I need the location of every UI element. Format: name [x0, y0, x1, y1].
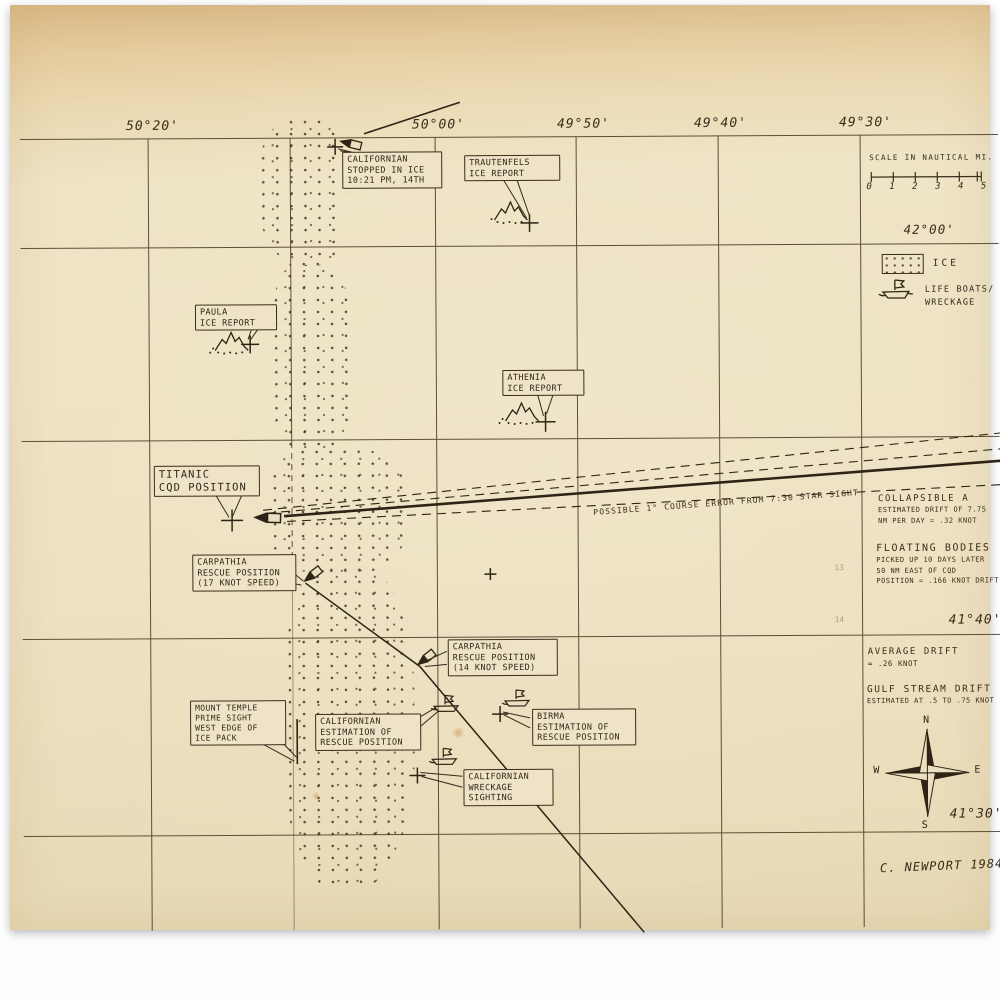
callout-californian-estimation: CALIFORNIAN ESTIMATION OF RESCUE POSITIO…	[315, 713, 421, 750]
lifeboat-icon	[502, 690, 529, 706]
note-body: ESTIMATED DRIFT OF 7.75 NM PER DAY = .32…	[878, 505, 987, 527]
scale-tick: 2	[912, 182, 917, 192]
carpathia-17-ship-arrow	[301, 565, 323, 585]
callout-carpathia-rescue-14: CARPATHIA RESCUE POSITION (14 KNOT SPEED…	[448, 639, 558, 676]
note-title: GULF STREAM DRIFT	[867, 683, 994, 695]
note-body: = .26 KNOT	[868, 658, 959, 670]
leader-lines	[214, 148, 555, 789]
scale-tick: 5	[981, 182, 986, 192]
callout-carpathia-rescue-17: CARPATHIA RESCUE POSITION (17 KNOT SPEED…	[192, 554, 296, 591]
iceberg-icon-paula	[209, 332, 248, 354]
pencil-mark: 13	[834, 563, 844, 572]
callout-paula-ice-report: PAULA ICE REPORT	[195, 304, 277, 331]
compass-west-label: W	[873, 765, 879, 776]
ice-swatch-icon	[882, 254, 924, 274]
callout-californian-stopped: CALIFORNIAN STOPPED IN ICE 10:21 PM, 14T…	[342, 151, 442, 188]
lifeboat-icon	[429, 748, 456, 764]
scale-tick-numbers: 0 1 2 3 4 5	[866, 182, 986, 193]
scale-tick: 4	[958, 182, 963, 192]
note-title: AVERAGE DRIFT	[868, 647, 959, 657]
note-title: COLLAPSIBLE A	[878, 494, 986, 505]
note-title: FLOATING BODIES	[876, 542, 999, 554]
lifeboat-icon	[431, 695, 458, 711]
compass-east-label: E	[974, 765, 980, 776]
scanned-chart-page: 50°20' 50°00' 49°50' 49°40' 49°30' 42°00…	[0, 0, 1000, 1000]
scale-tick: 3	[935, 182, 940, 192]
pencil-mark: 14	[835, 615, 845, 624]
callout-athenia-ice-report: ATHENIA ICE REPORT	[502, 370, 584, 397]
callout-mount-temple-sight: MOUNT TEMPLE PRIME SIGHT WEST EDGE OF IC…	[190, 700, 286, 746]
longitude-label: 49°40'	[694, 116, 747, 131]
californian-ship-arrow	[338, 137, 362, 151]
scale-ruler	[871, 172, 981, 183]
note-gulf-stream-drift: GULF STREAM DRIFT ESTIMATED AT .5 TO .75…	[867, 683, 994, 706]
lifeboat-legend-icon	[879, 280, 913, 298]
grid-lines	[20, 134, 1000, 931]
note-collapsible-a: COLLAPSIBLE A ESTIMATED DRIFT OF 7.75 NM…	[878, 494, 987, 527]
chart-drawing	[7, 2, 1000, 1000]
latitude-label: 41°40'	[949, 612, 1000, 627]
callout-titanic-cqd-position: TITANIC CQD POSITION	[154, 465, 260, 497]
note-body: PICKED UP 10 DAYS LATER 50 NM EAST OF CQ…	[876, 554, 999, 586]
callout-californian-wreckage: CALIFORNIAN WRECKAGE SIGHTING	[463, 769, 553, 806]
longitude-label: 49°50'	[557, 116, 610, 131]
scale-title: SCALE IN NAUTICAL MI.	[869, 152, 993, 162]
chart-paper: 50°20' 50°00' 49°50' 49°40' 49°30' 42°00…	[10, 5, 990, 930]
longitude-label: 50°20'	[126, 119, 179, 134]
longitude-label: 49°30'	[839, 115, 892, 130]
compass-south-label: S	[922, 820, 928, 831]
longitude-label: 50°00'	[412, 117, 465, 132]
legend-ice-label: ICE	[933, 257, 959, 271]
scale-tick: 0	[866, 182, 871, 192]
compass-north-label: N	[923, 715, 929, 726]
callout-trautenfels-ice-report: TRAUTENFELS ICE REPORT	[464, 155, 560, 182]
legend-lifeboats-label: LIFE BOATS/ WRECKAGE	[925, 283, 995, 309]
position-crosses	[219, 138, 557, 785]
latitude-label: 42°00'	[904, 222, 955, 237]
iceberg-icon-trautenfels	[490, 202, 527, 224]
callout-birma-estimation: BIRMA ESTIMATION OF RESCUE POSITION	[532, 708, 636, 745]
iceberg-icon-athenia	[498, 403, 538, 425]
scale-tick: 1	[889, 182, 894, 192]
compass-rose-icon	[885, 729, 969, 817]
latitude-label: 41°30'	[950, 806, 1000, 821]
note-average-drift: AVERAGE DRIFT = .26 KNOT	[868, 647, 959, 670]
carpathia-track	[305, 581, 644, 934]
chart-content: 50°20' 50°00' 49°50' 49°40' 49°30' 42°00…	[7, 2, 1000, 1000]
titanic-ship-arrow	[253, 512, 281, 524]
note-floating-bodies: FLOATING BODIES PICKED UP 10 DAYS LATER …	[876, 542, 999, 586]
note-body: ESTIMATED AT .5 TO .75 KNOT	[867, 695, 994, 706]
